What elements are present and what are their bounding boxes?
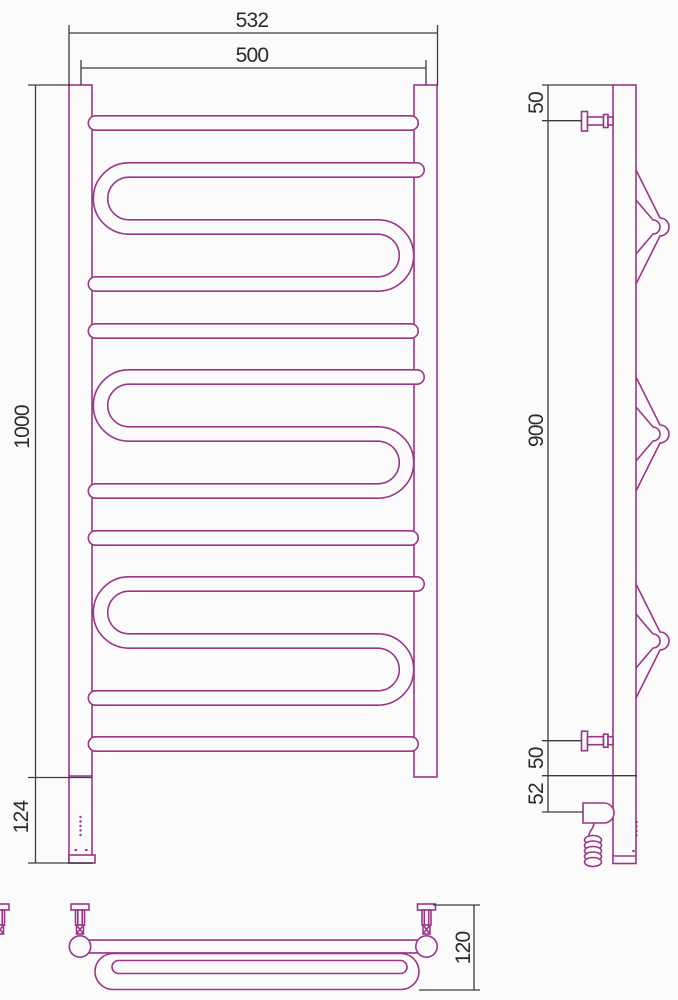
dim-bottom-depth: 120	[452, 932, 475, 965]
dimensions: 532 500 1000 124 50 900 50 52 120	[10, 9, 637, 990]
dim-front-axis-width: 500	[236, 44, 269, 67]
technical-drawing-page: 532 500 1000 124 50 900 50 52 120	[0, 0, 678, 1000]
dim-side-top-bracket: 50	[525, 92, 548, 114]
dim-front-height: 1000	[11, 405, 34, 449]
serpentine-coil-1	[96, 170, 418, 284]
bottom-left-collector	[69, 936, 90, 957]
dim-side-bracket-span: 900	[525, 414, 548, 447]
front-right-rail	[414, 85, 437, 777]
bottom-right-bracket	[418, 904, 436, 934]
wall-bracket-top	[582, 112, 614, 132]
side-coil-bulge-1	[636, 170, 669, 284]
front-view	[69, 85, 437, 863]
dim-front-overall-width: 532	[236, 9, 269, 32]
bottom-right-collector	[416, 936, 437, 957]
bottom-coil-inner	[112, 961, 407, 974]
wall-bracket-bottom	[582, 731, 614, 751]
bottom-bracket	[0, 904, 9, 934]
power-cable	[589, 823, 594, 836]
dim-front-heater-section: 124	[10, 800, 33, 834]
bottom-left-bracket	[71, 904, 89, 934]
dim-side-bottom-bracket: 50	[525, 747, 548, 769]
side-coil-bulge-3	[636, 584, 669, 698]
dim-side-power-offset: 52	[525, 783, 548, 805]
side-rail	[613, 85, 636, 864]
power-connection-box	[583, 803, 614, 823]
side-view	[582, 85, 670, 867]
spiral-cable	[585, 836, 602, 867]
serpentine-coil-2	[96, 377, 418, 491]
bottom-view	[0, 904, 437, 990]
serpentine-coil-3	[96, 584, 418, 698]
towel-rail-drawing: 532 500 1000 124 50 900 50 52 120	[0, 0, 678, 1000]
side-coil-bulge-2	[636, 377, 669, 491]
